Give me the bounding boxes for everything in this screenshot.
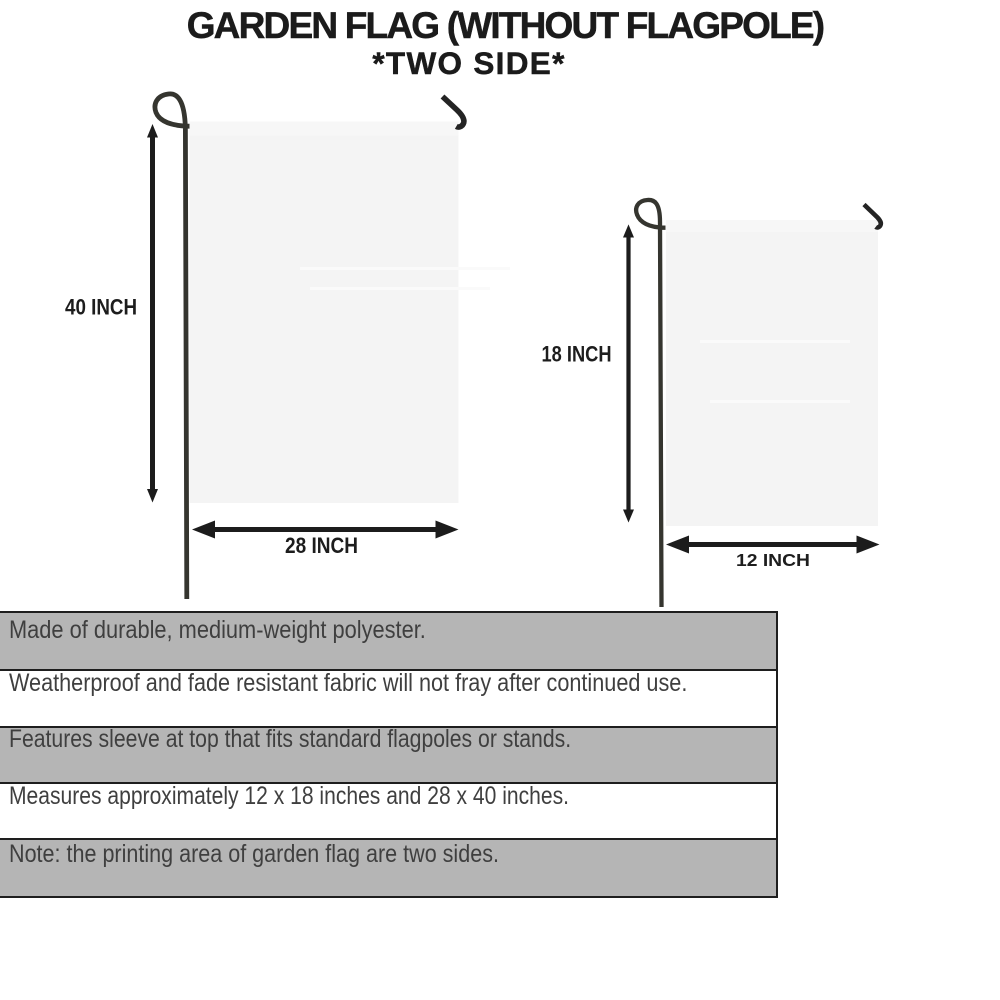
svg-text:40 INCH: 40 INCH (65, 295, 137, 320)
svg-text:28 INCH: 28 INCH (285, 533, 358, 558)
svg-text:18 INCH: 18 INCH (542, 342, 612, 367)
svg-text:12 INCH: 12 INCH (736, 550, 810, 570)
